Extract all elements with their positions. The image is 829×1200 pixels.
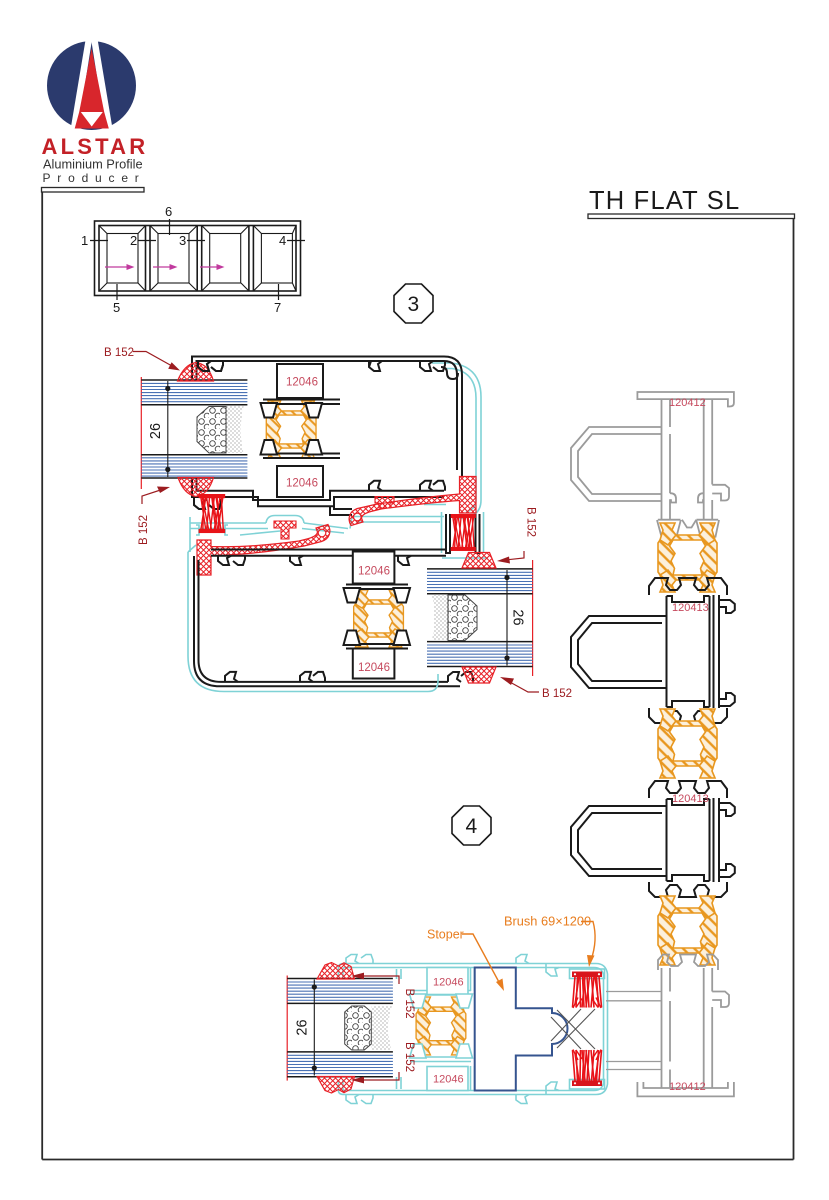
svg-text:7: 7	[274, 300, 281, 315]
svg-text:12046: 12046	[286, 377, 318, 389]
svg-text:Producer: Producer	[43, 171, 146, 185]
svg-text:B 152: B 152	[104, 347, 134, 359]
svg-text:12046: 12046	[358, 566, 390, 578]
svg-text:2: 2	[130, 233, 137, 248]
svg-text:26: 26	[510, 609, 526, 625]
svg-text:3: 3	[408, 293, 420, 316]
svg-text:12046: 12046	[433, 977, 464, 989]
svg-text:TH FLAT SL: TH FLAT SL	[589, 187, 740, 215]
svg-text:ALSTAR: ALSTAR	[42, 134, 149, 159]
svg-text:3: 3	[179, 233, 186, 248]
svg-text:B 152: B 152	[525, 507, 537, 537]
svg-text:B 152: B 152	[403, 1042, 415, 1072]
svg-text:120412: 120412	[669, 397, 706, 409]
svg-text:120413: 120413	[672, 602, 709, 614]
svg-text:4: 4	[279, 233, 286, 248]
svg-text:12046: 12046	[433, 1074, 464, 1086]
svg-text:120412: 120412	[669, 1081, 706, 1093]
svg-text:5: 5	[113, 300, 120, 315]
svg-text:4: 4	[466, 815, 478, 838]
svg-text:12046: 12046	[358, 662, 390, 674]
svg-text:6: 6	[165, 204, 172, 219]
svg-text:12046: 12046	[286, 478, 318, 490]
svg-text:B 152: B 152	[542, 688, 572, 700]
svg-text:1: 1	[81, 233, 88, 248]
svg-text:26: 26	[295, 1019, 311, 1035]
svg-text:Brush 69×1200: Brush 69×1200	[504, 914, 591, 929]
svg-text:120413: 120413	[672, 793, 709, 805]
svg-text:Aluminium Profile: Aluminium Profile	[43, 157, 143, 172]
svg-text:Stoper: Stoper	[427, 928, 464, 942]
svg-text:B 152: B 152	[138, 515, 150, 545]
svg-text:B 152: B 152	[403, 989, 415, 1019]
svg-text:26: 26	[148, 423, 164, 439]
